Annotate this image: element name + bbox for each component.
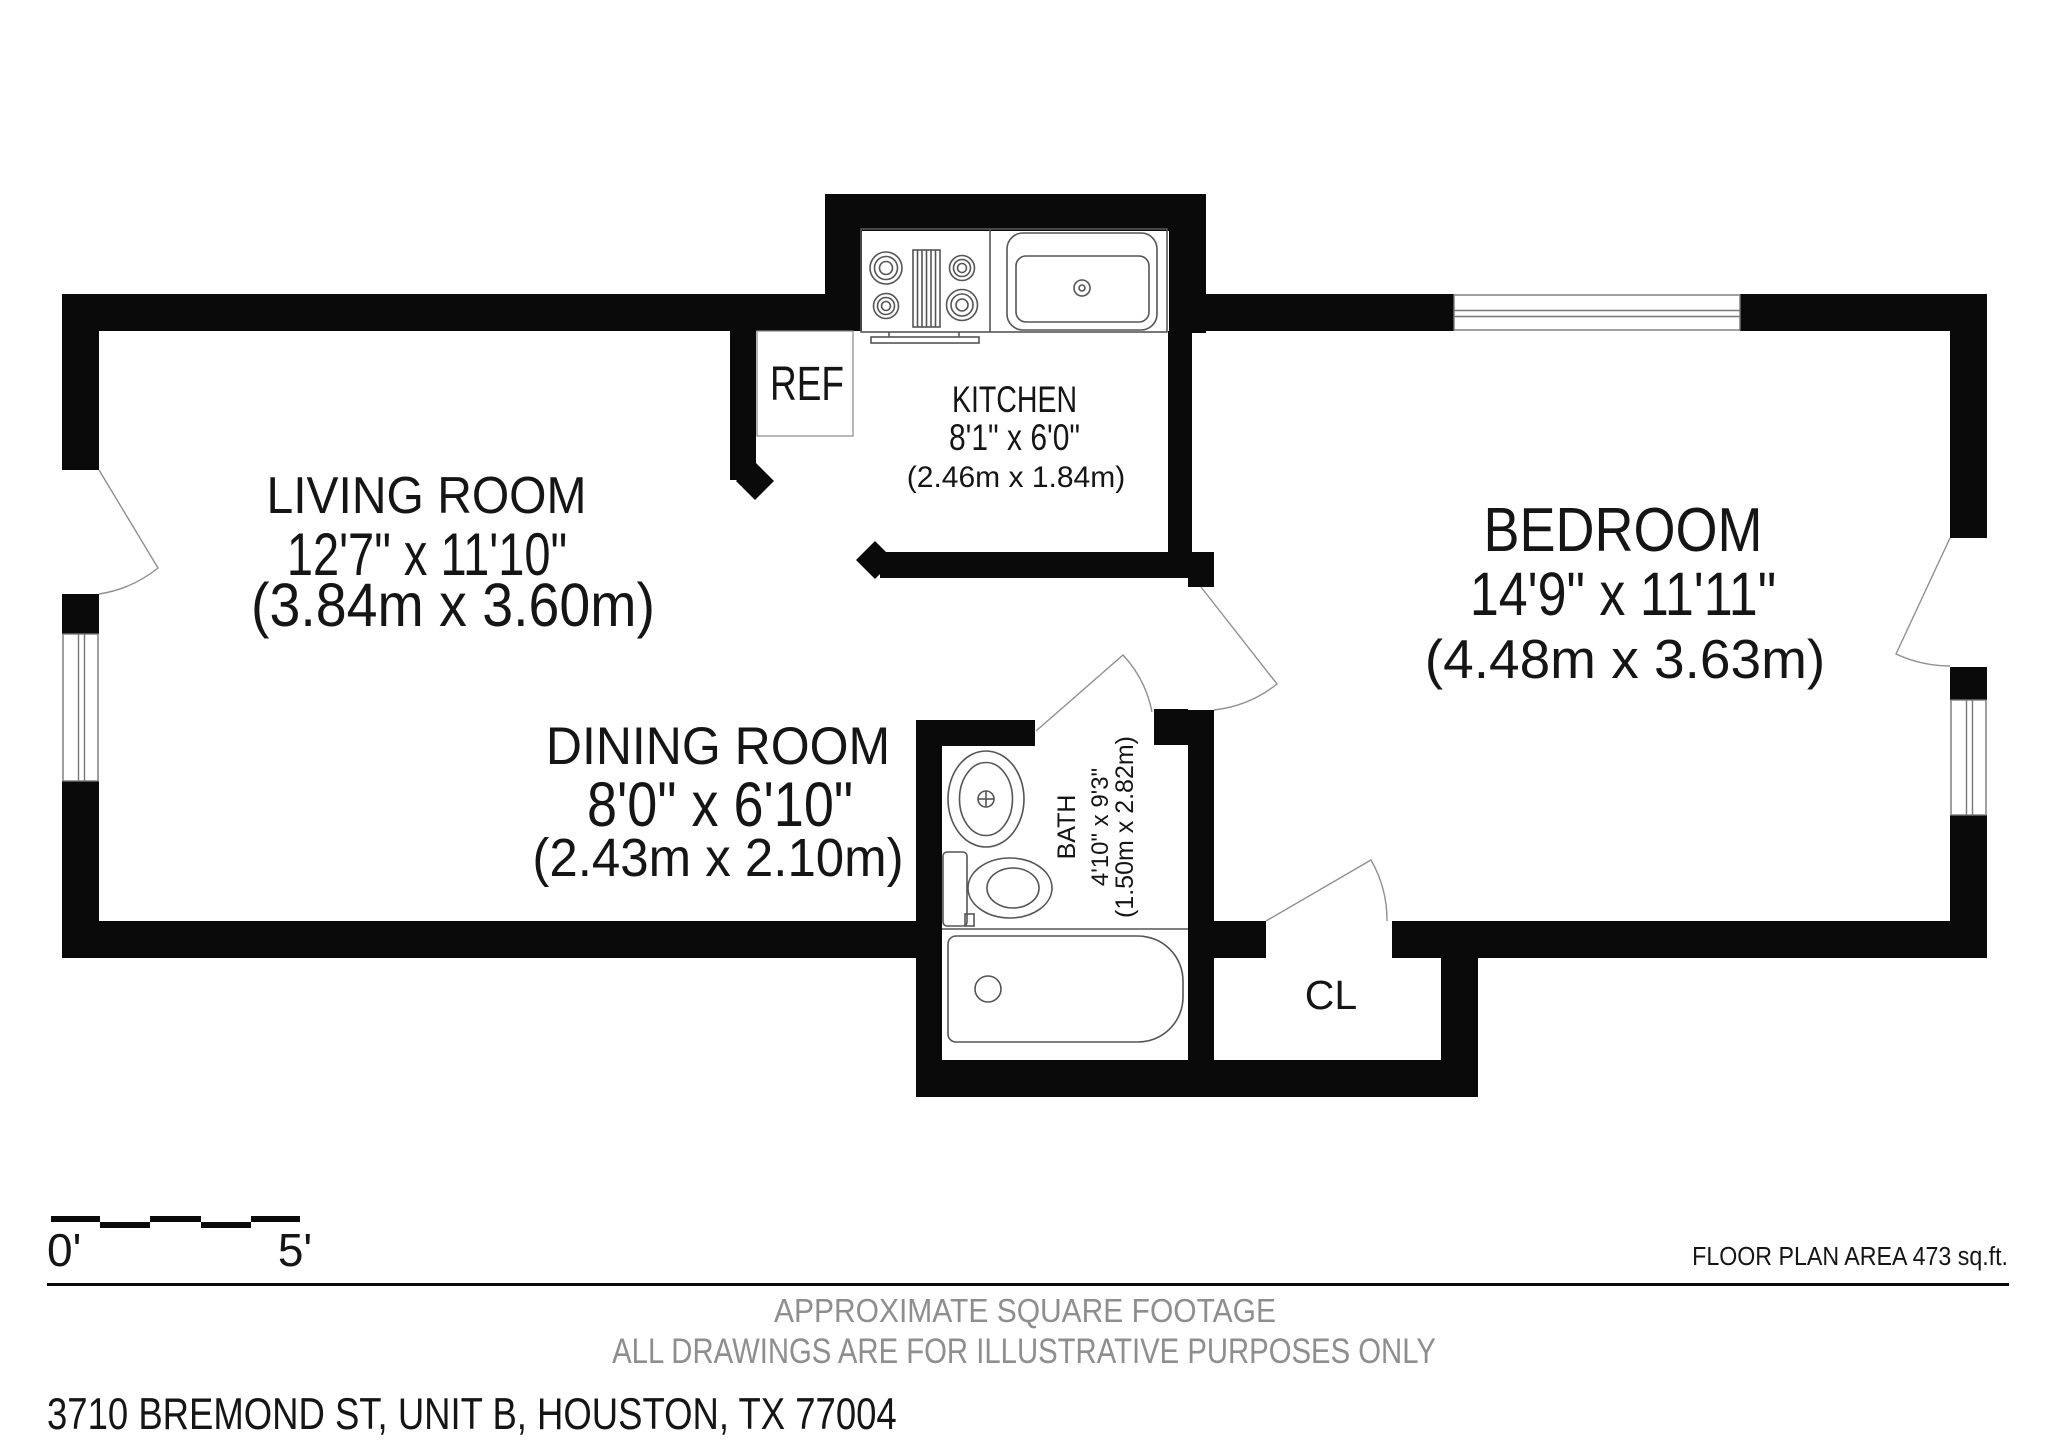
svg-text:APPROXIMATE SQUARE FOOTAGE: APPROXIMATE SQUARE FOOTAGE	[774, 1292, 1276, 1330]
svg-text:0': 0'	[47, 1224, 81, 1276]
svg-text:FLOOR PLAN AREA 473 sq.ft.: FLOOR PLAN AREA 473 sq.ft.	[1692, 1243, 2008, 1271]
svg-text:4'10" x 9'3": 4'10" x 9'3"	[1087, 768, 1114, 886]
svg-text:(2.43m x 2.10m): (2.43m x 2.10m)	[532, 829, 903, 888]
svg-text:(4.48m x 3.63m): (4.48m x 3.63m)	[1425, 628, 1825, 690]
svg-text:DINING ROOM: DINING ROOM	[546, 717, 890, 775]
svg-text:(3.84m x 3.60m): (3.84m x 3.60m)	[251, 572, 655, 640]
svg-text:5': 5'	[278, 1224, 312, 1276]
svg-text:14'9" x 11'11": 14'9" x 11'11"	[1470, 560, 1776, 628]
svg-text:(2.46m x 1.84m): (2.46m x 1.84m)	[907, 461, 1125, 494]
svg-text:ALL DRAWINGS ARE FOR ILLUSTRAT: ALL DRAWINGS ARE FOR ILLUSTRATIVE PURPOS…	[612, 1331, 1436, 1370]
svg-text:REF: REF	[770, 357, 844, 411]
svg-text:8'1" x 6'0": 8'1" x 6'0"	[949, 417, 1080, 459]
svg-text:BEDROOM: BEDROOM	[1483, 496, 1762, 565]
svg-text:CL: CL	[1305, 972, 1357, 1018]
svg-text:KITCHEN: KITCHEN	[952, 379, 1077, 420]
svg-text:LIVING ROOM: LIVING ROOM	[267, 466, 587, 524]
svg-text:(1.50m x 2.82m): (1.50m x 2.82m)	[1111, 736, 1139, 918]
svg-text:3710 BREMOND ST, UNIT B, HOUST: 3710 BREMOND ST, UNIT B, HOUSTON, TX 770…	[47, 1389, 897, 1439]
svg-text:BATH: BATH	[1053, 795, 1081, 860]
